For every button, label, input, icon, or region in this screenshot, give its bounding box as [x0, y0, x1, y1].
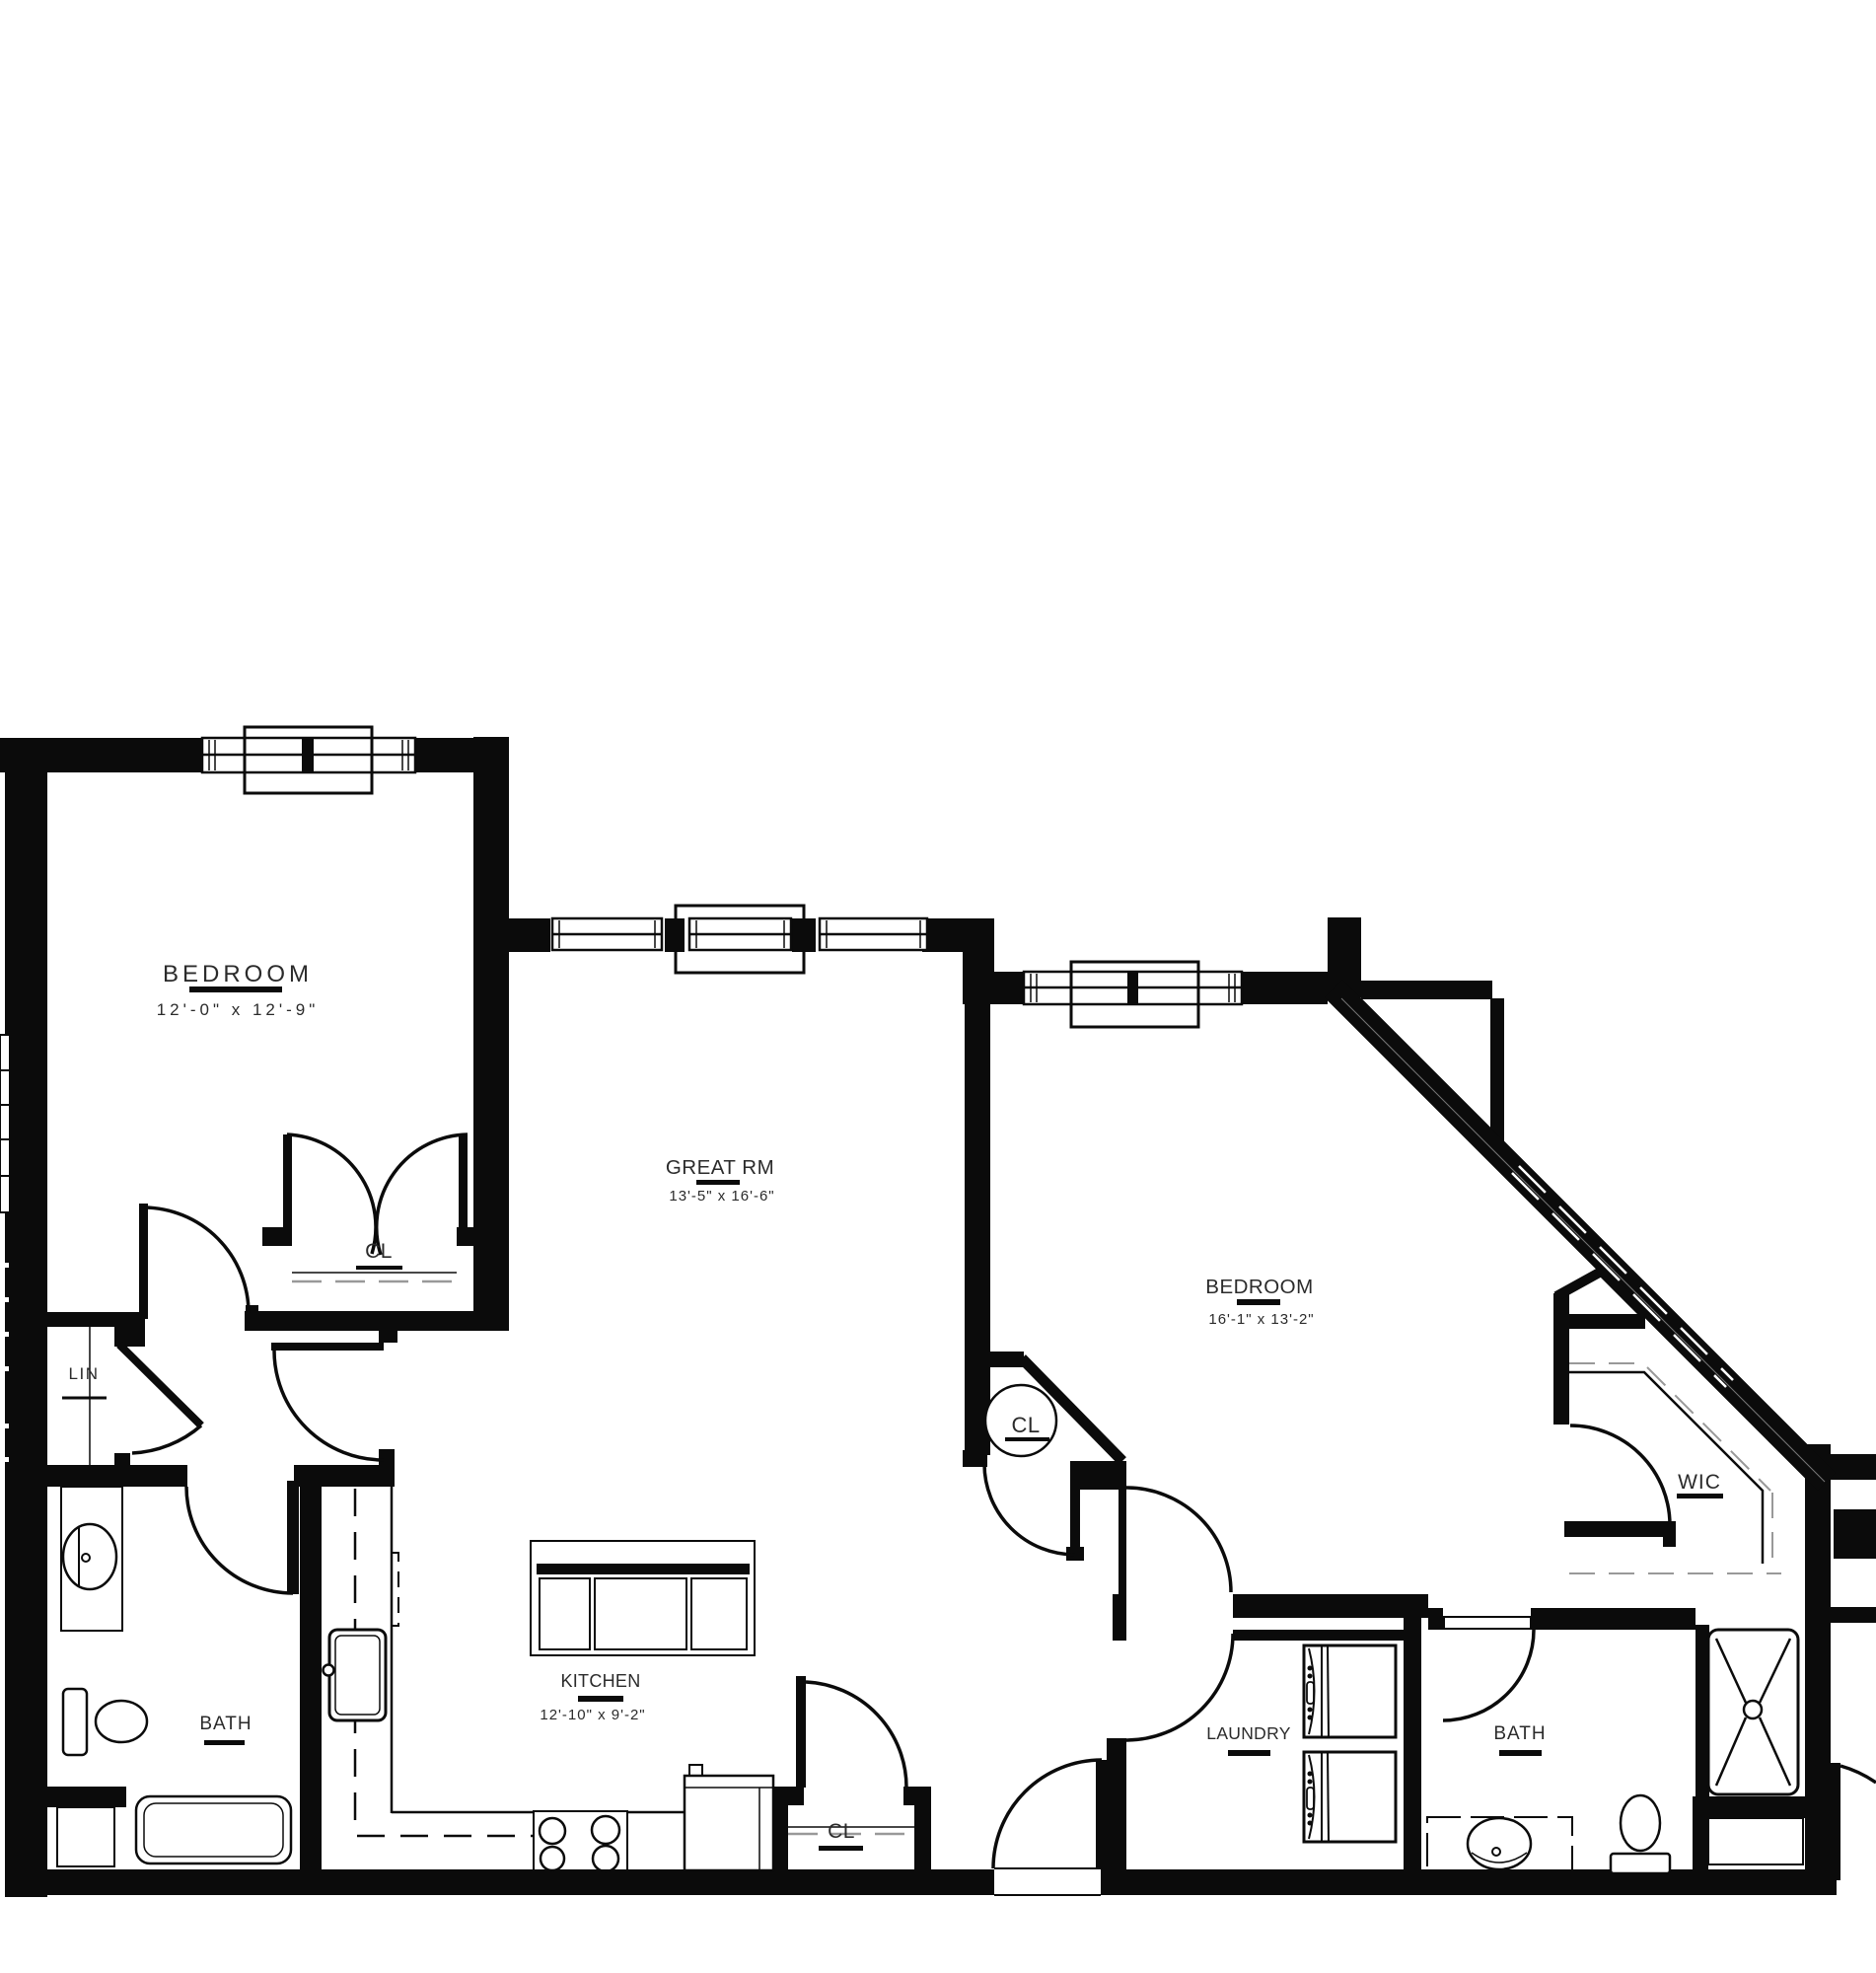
- svg-text:12'-0" x 12'-9": 12'-0" x 12'-9": [157, 1000, 320, 1019]
- svg-text:WIC: WIC: [1678, 1471, 1721, 1494]
- svg-text:CL: CL: [365, 1240, 393, 1263]
- svg-text:CL: CL: [1011, 1413, 1040, 1437]
- svg-text:BEDROOM: BEDROOM: [163, 961, 313, 987]
- svg-text:BATH: BATH: [1493, 1723, 1546, 1744]
- svg-text:BATH: BATH: [199, 1714, 252, 1734]
- svg-text:16'-1" x 13'-2": 16'-1" x 13'-2": [1208, 1311, 1314, 1328]
- svg-text:LAUNDRY: LAUNDRY: [1206, 1723, 1290, 1743]
- svg-text:CL: CL: [828, 1820, 855, 1843]
- svg-text:GREAT RM: GREAT RM: [666, 1156, 774, 1179]
- svg-text:KITCHEN: KITCHEN: [560, 1671, 640, 1691]
- svg-text:12'-10" x 9'-2": 12'-10" x 9'-2": [540, 1707, 645, 1723]
- svg-text:13'-5" x 16'-6": 13'-5" x 16'-6": [669, 1188, 774, 1205]
- svg-text:BEDROOM: BEDROOM: [1205, 1276, 1313, 1298]
- svg-text:LIN: LIN: [69, 1364, 100, 1383]
